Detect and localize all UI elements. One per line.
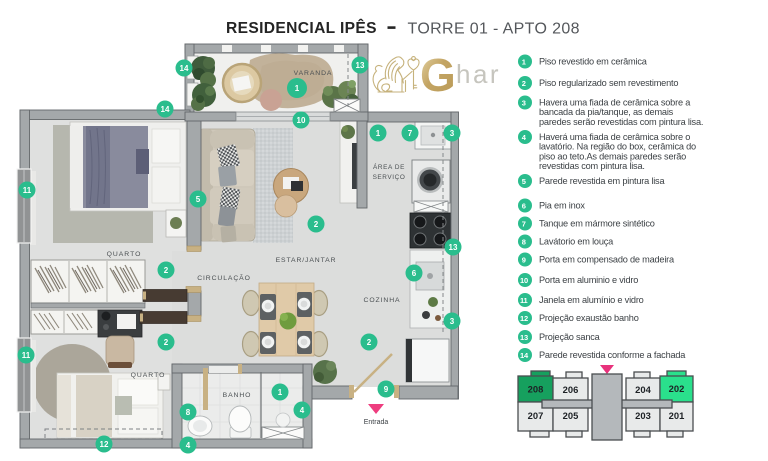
- svg-text:TORRE 01 - APTO 208: TORRE 01 - APTO 208: [408, 21, 580, 38]
- svg-text:lavatório. Na região do box, c: lavatório. Na região do box, cerâmica do: [539, 142, 696, 152]
- svg-text:2: 2: [314, 220, 319, 229]
- svg-text:11: 11: [520, 296, 528, 305]
- svg-text:3: 3: [450, 129, 455, 138]
- svg-text:207: 207: [528, 410, 544, 421]
- svg-text:203: 203: [635, 410, 651, 421]
- svg-text:1: 1: [376, 129, 381, 138]
- svg-text:205: 205: [563, 410, 579, 421]
- svg-text:Haverá uma fiada de cerâmica s: Haverá uma fiada de cerâmica sobre o: [539, 132, 690, 142]
- svg-text:11: 11: [22, 351, 31, 360]
- svg-text:BANHO: BANHO: [223, 392, 252, 399]
- svg-text:206: 206: [563, 384, 579, 395]
- svg-text:13: 13: [449, 243, 458, 252]
- svg-text:2: 2: [367, 338, 372, 347]
- svg-text:Parede revestida em pintura li: Parede revestida em pintura lisa: [539, 176, 665, 186]
- svg-text:13: 13: [520, 333, 528, 342]
- svg-text:Parede revestida conforme a fa: Parede revestida conforme a fachada: [539, 350, 686, 360]
- svg-text:6: 6: [412, 269, 417, 278]
- svg-text:208: 208: [528, 384, 544, 395]
- svg-text:202: 202: [669, 383, 685, 394]
- svg-text:Porta em aluminio e vidro: Porta em aluminio e vidro: [539, 275, 638, 285]
- svg-text:5: 5: [522, 177, 526, 186]
- svg-text:201: 201: [669, 410, 685, 421]
- svg-text:14: 14: [161, 105, 170, 114]
- svg-text:paredes serão revestidas com p: paredes serão revestidas com pintura lis…: [539, 117, 703, 127]
- svg-text:ESTAR/JANTAR: ESTAR/JANTAR: [276, 257, 337, 264]
- svg-text:har: har: [456, 59, 501, 89]
- svg-text:204: 204: [635, 384, 651, 395]
- svg-text:12: 12: [100, 440, 109, 449]
- svg-text:Piso regularizado sem revestim: Piso regularizado sem revestimento: [539, 78, 678, 88]
- svg-text:8: 8: [522, 238, 526, 247]
- svg-text:10: 10: [520, 276, 528, 285]
- svg-text:Janela em alumínio e vidro: Janela em alumínio e vidro: [539, 295, 644, 305]
- svg-text:1: 1: [522, 58, 526, 67]
- svg-text:Porta em compensado de madeira: Porta em compensado de madeira: [539, 255, 675, 265]
- svg-text:CIRCULAÇÃO: CIRCULAÇÃO: [197, 273, 251, 282]
- svg-text:Lavátorio em louça: Lavátorio em louça: [539, 237, 614, 247]
- svg-text:10: 10: [297, 116, 306, 125]
- svg-text:5: 5: [196, 195, 201, 204]
- svg-text:12: 12: [520, 314, 528, 323]
- svg-text:8: 8: [186, 408, 191, 417]
- svg-text:Pia em inox: Pia em inox: [539, 201, 585, 211]
- svg-text:VARANDA: VARANDA: [294, 70, 333, 77]
- svg-text:6: 6: [522, 202, 526, 211]
- svg-text:Havera uma fiada de cerâmica s: Havera uma fiada de cerâmica sobre a: [539, 98, 691, 108]
- svg-text:RESIDENCIAL IPÊS: RESIDENCIAL IPÊS: [226, 18, 377, 37]
- svg-text:2: 2: [164, 338, 169, 347]
- svg-text:13: 13: [356, 61, 365, 70]
- svg-text:SERVIÇO: SERVIÇO: [373, 174, 406, 181]
- svg-text:QUARTO: QUARTO: [107, 251, 142, 258]
- svg-text:revestidas com pintura lisa.: revestidas com pintura lisa.: [539, 161, 645, 171]
- svg-text:Tanque em mármore sintético: Tanque em mármore sintético: [539, 219, 655, 229]
- svg-text:7: 7: [522, 220, 526, 229]
- svg-text:piso ao teto.As demais paredes: piso ao teto.As demais paredes serão: [539, 151, 686, 161]
- svg-text:14: 14: [180, 64, 189, 73]
- svg-text:4: 4: [300, 406, 305, 415]
- svg-text:2: 2: [522, 79, 526, 88]
- svg-text:3: 3: [522, 99, 526, 108]
- svg-text:ÁREA DE: ÁREA DE: [373, 162, 405, 171]
- svg-text:14: 14: [520, 351, 529, 360]
- svg-text:1: 1: [278, 388, 283, 397]
- svg-text:4: 4: [186, 441, 191, 450]
- svg-text:bancada da pia/tanque, as dema: bancada da pia/tanque, as demais: [539, 107, 674, 117]
- svg-text:7: 7: [408, 129, 413, 138]
- svg-text:9: 9: [522, 256, 526, 265]
- svg-text:3: 3: [450, 317, 455, 326]
- svg-text:2: 2: [164, 266, 169, 275]
- svg-text:Piso revestido em cerâmica: Piso revestido em cerâmica: [539, 57, 648, 67]
- svg-text:1: 1: [295, 84, 300, 93]
- svg-text:11: 11: [23, 186, 32, 195]
- svg-text:G: G: [420, 49, 456, 101]
- svg-text:Projeção sanca: Projeção sanca: [539, 332, 601, 342]
- svg-text:Projeção exaustão banho: Projeção exaustão banho: [539, 313, 639, 323]
- svg-text:QUARTO: QUARTO: [131, 372, 166, 379]
- svg-text:Entrada: Entrada: [364, 419, 389, 426]
- svg-text:9: 9: [384, 385, 389, 394]
- svg-text:COZINHA: COZINHA: [364, 297, 401, 304]
